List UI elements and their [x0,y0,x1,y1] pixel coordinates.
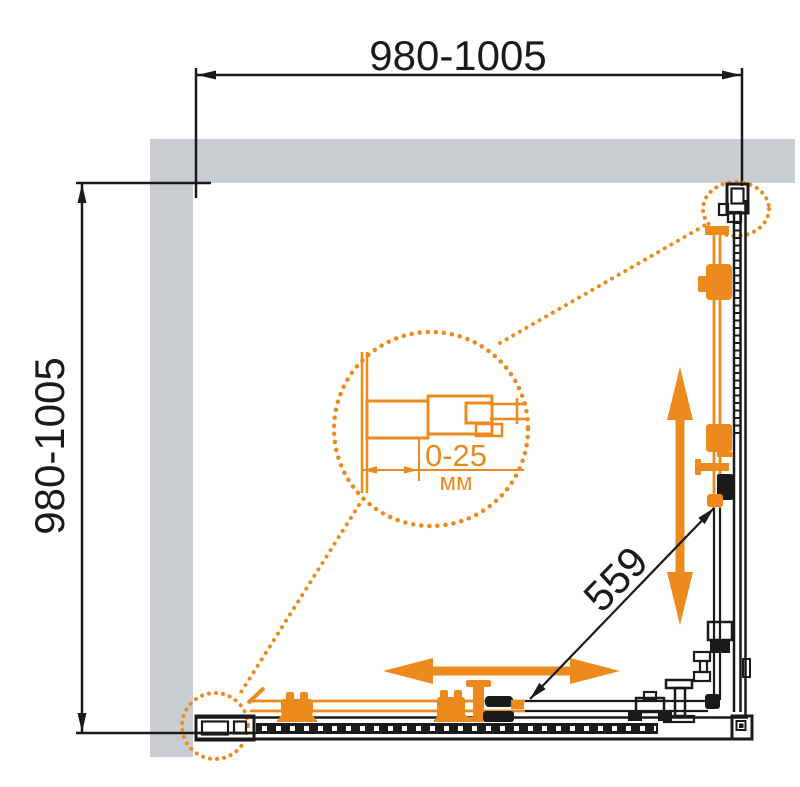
track-top-bracket [705,226,729,235]
top-dimension-label: 980-1005 [369,32,547,79]
diagonal-dimension-label: 559 [574,537,656,620]
sliding-door-orange-half [248,226,733,722]
detail-arrow-left [363,466,377,474]
arrowhead-down [78,713,87,732]
wall-left [150,139,193,757]
left-height-dimension: 980-1005 [26,183,256,733]
orange-roller-bottom-left [276,692,318,722]
orange-post [466,680,491,687]
arrowhead-left [197,71,216,80]
dimension-drawing: 980-1005 980-1005 0-25 мм [0,0,800,787]
arrowhead-up [78,184,87,203]
adjustment-range-label: 0-25 [425,438,487,473]
leader-line-top [500,224,707,343]
diagonal-dimension: 559 [530,508,714,699]
sliding-door-dark-half [525,508,732,722]
orange-roller-right-top [698,264,732,300]
left-dimension-label: 980-1005 [26,357,73,535]
detail-arrow-right [404,466,418,474]
arrowhead-right [722,71,741,80]
door-corner-elbow [705,694,720,709]
leader-line-bottom [238,505,359,697]
drawing-canvas: 980-1005 980-1005 0-25 мм [0,0,800,787]
wall-top [150,139,795,183]
adjustment-profile-detail: 0-25 мм [362,352,527,496]
side-knob-black [694,652,710,661]
adjustment-unit-label: мм [440,469,473,496]
orange-roller-bottom-mid [433,680,524,722]
orange-roller-right-mid [695,424,733,507]
bottom-glass-hatch [256,723,658,734]
